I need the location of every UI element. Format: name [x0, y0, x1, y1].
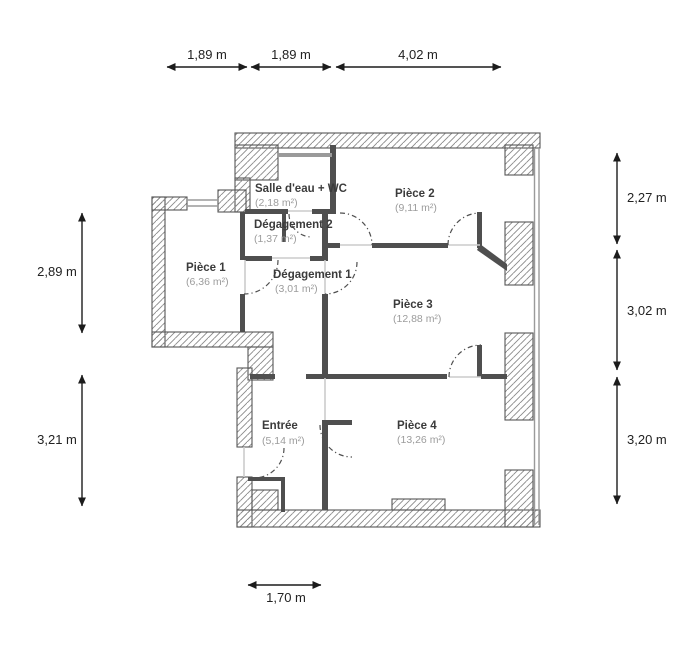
dim-right-2: 3,02 m — [627, 303, 667, 318]
dimensions-top: 1,89 m 1,89 m 4,02 m — [167, 47, 501, 67]
dim-top-1: 1,89 m — [187, 47, 227, 62]
floor-plan-svg: Salle d'eau + WC (2,18 m²) Pièce 2 (9,11… — [0, 0, 685, 648]
room-label-entree: Entrée (5,14 m²) — [262, 420, 305, 447]
room-area-degagement2: (1,37 m²) — [254, 233, 297, 245]
room-name-piece2: Pièce 2 — [395, 188, 435, 200]
room-area-piece2: (9,11 m²) — [395, 202, 437, 214]
floor-plan: Salle d'eau + WC (2,18 m²) Pièce 2 (9,11… — [0, 0, 685, 648]
dim-right-1: 2,27 m — [627, 190, 667, 205]
diagonal-wall — [477, 244, 507, 271]
room-name-piece1: Pièce 1 — [186, 262, 226, 274]
room-name-degagement1: Dégagement 1 — [273, 269, 352, 281]
room-area-degagement1: (3,01 m²) — [275, 283, 318, 295]
room-labels: Salle d'eau + WC (2,18 m²) Pièce 2 (9,11… — [186, 183, 445, 447]
room-area-entree: (5,14 m²) — [262, 435, 305, 447]
room-name-piece3: Pièce 3 — [393, 299, 433, 311]
door-piece3-south — [449, 345, 481, 377]
dim-top-2: 1,89 m — [271, 47, 311, 62]
room-area-salle-eau: (2,18 m²) — [255, 197, 298, 209]
dim-bottom-1: 1,70 m — [266, 590, 306, 605]
room-name-salle-eau: Salle d'eau + WC — [255, 183, 347, 195]
room-area-piece3: (12,88 m²) — [393, 313, 441, 325]
dim-left-1: 2,89 m — [37, 264, 77, 279]
dimensions-bottom: 1,70 m — [248, 585, 321, 605]
window-piece1-north — [187, 200, 218, 206]
dimensions-left: 2,89 m 3,21 m — [37, 213, 82, 506]
room-label-piece3: Pièce 3 (12,88 m²) — [393, 299, 441, 325]
door-piece2-left — [340, 213, 372, 245]
room-name-piece4: Pièce 4 — [397, 420, 437, 432]
dim-right-3: 3,20 m — [627, 432, 667, 447]
window-band-east — [535, 148, 540, 525]
room-name-entree: Entrée — [262, 420, 298, 432]
room-label-piece1: Pièce 1 (6,36 m²) — [186, 262, 229, 288]
room-area-piece1: (6,36 m²) — [186, 276, 229, 288]
dimensions-right: 2,27 m 3,02 m 3,20 m — [617, 153, 667, 504]
room-label-piece4: Pièce 4 (13,26 m²) — [397, 420, 445, 446]
door-entree-main — [254, 448, 284, 478]
room-label-degagement2: Dégagement 2 (1,37 m²) — [254, 219, 333, 245]
room-area-piece4: (13,26 m²) — [397, 434, 445, 446]
room-label-piece2: Pièce 2 (9,11 m²) — [395, 188, 437, 214]
door-piece2-right — [448, 213, 480, 245]
dim-left-2: 3,21 m — [37, 432, 77, 447]
dim-top-3: 4,02 m — [398, 47, 438, 62]
room-label-degagement1: Dégagement 1 (3,01 m²) — [273, 269, 352, 295]
room-name-degagement2: Dégagement 2 — [254, 219, 333, 231]
